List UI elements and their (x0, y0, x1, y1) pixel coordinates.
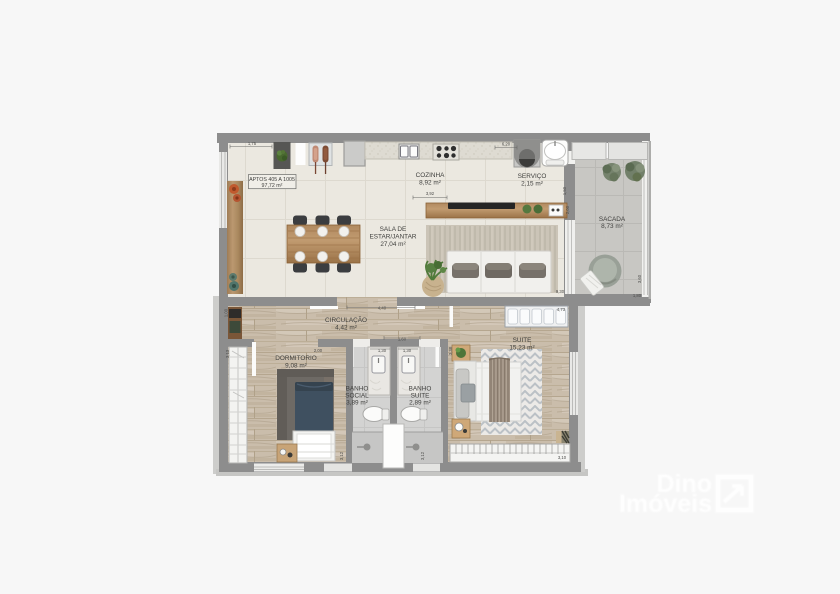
svg-text:6,20: 6,20 (502, 142, 511, 147)
svg-text:9,08 m²: 9,08 m² (285, 363, 307, 370)
svg-text:SOCIAL: SOCIAL (345, 393, 369, 400)
svg-text:SALA DE: SALA DE (380, 226, 407, 233)
svg-text:4,73: 4,73 (557, 307, 566, 312)
svg-text:8,92 m²: 8,92 m² (419, 180, 441, 187)
svg-text:3,13: 3,13 (225, 349, 230, 358)
svg-text:8,73 m²: 8,73 m² (601, 223, 623, 230)
svg-text:1,50: 1,50 (562, 186, 567, 195)
svg-text:SACADA: SACADA (599, 216, 626, 223)
svg-text:SERVIÇO: SERVIÇO (518, 173, 547, 180)
svg-text:27,04 m²: 27,04 m² (380, 241, 405, 248)
svg-text:3,89 m²: 3,89 m² (346, 400, 368, 407)
svg-text:97,72 m²: 97,72 m² (262, 183, 283, 189)
svg-text:1,75: 1,75 (248, 141, 257, 146)
svg-text:3,12: 3,12 (420, 451, 425, 460)
svg-text:15,23 m²: 15,23 m² (509, 345, 534, 352)
svg-text:BANHO: BANHO (409, 386, 432, 393)
svg-text:ESTAR/JANTAR: ESTAR/JANTAR (370, 234, 417, 241)
svg-text:BANHO: BANHO (346, 386, 369, 393)
svg-text:3,60: 3,60 (637, 274, 642, 283)
svg-text:9,30: 9,30 (556, 289, 565, 294)
svg-text:1,80: 1,80 (633, 293, 642, 298)
svg-text:2,00: 2,00 (314, 348, 323, 353)
svg-text:APTOS 405 A 1005: APTOS 405 A 1005 (249, 177, 295, 183)
svg-text:3,12: 3,12 (339, 451, 344, 460)
svg-text:2,15 m²: 2,15 m² (521, 181, 543, 188)
svg-text:Imóveis: Imóveis (619, 490, 712, 518)
svg-text:1,00: 1,00 (224, 308, 229, 317)
svg-text:SUITE: SUITE (513, 337, 532, 344)
svg-text:2,00: 2,00 (565, 205, 570, 214)
svg-text:DORMITORIO: DORMITORIO (275, 355, 316, 362)
svg-text:3,92: 3,92 (426, 191, 435, 196)
svg-text:SUITE: SUITE (411, 393, 430, 400)
svg-text:2,89 m²: 2,89 m² (409, 400, 431, 407)
svg-text:3,10: 3,10 (558, 455, 567, 460)
svg-text:4,42 m²: 4,42 m² (335, 325, 357, 332)
svg-text:4,40: 4,40 (378, 306, 387, 311)
svg-text:1,60: 1,60 (398, 337, 407, 342)
svg-text:CIRCULAÇÃO: CIRCULAÇÃO (325, 315, 367, 324)
svg-text:COZINHA: COZINHA (416, 172, 445, 179)
svg-text:3,38: 3,38 (448, 346, 453, 355)
